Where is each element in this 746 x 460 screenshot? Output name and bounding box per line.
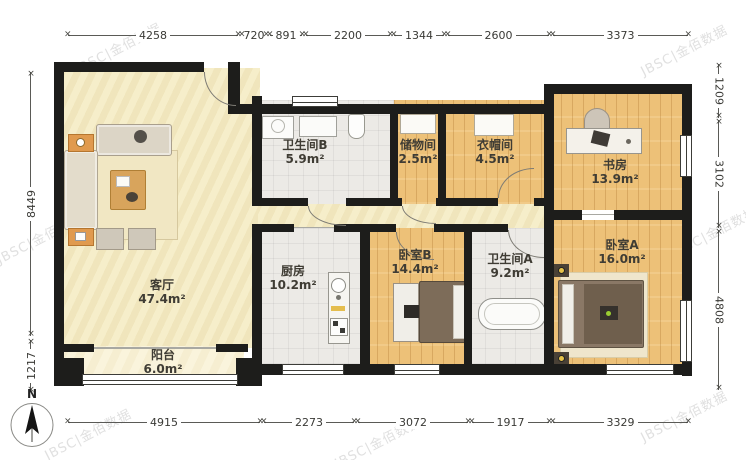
wall — [360, 224, 370, 364]
dim-top-3: 891 — [268, 28, 304, 42]
dim-bottom-3: 3072 — [356, 415, 470, 429]
wall — [436, 198, 498, 206]
wall — [62, 344, 94, 352]
north-label: N — [9, 388, 55, 400]
door-opening — [582, 210, 614, 220]
wall — [438, 364, 608, 375]
side-table — [134, 130, 147, 143]
window — [282, 364, 344, 375]
wall — [252, 224, 262, 364]
dim-bottom-2: 2273 — [262, 415, 356, 429]
label-bedroom-b: 卧室B14.4m² — [367, 248, 463, 276]
dish-rack — [331, 306, 345, 311]
window — [292, 96, 338, 107]
wall — [548, 84, 692, 94]
wall — [262, 224, 294, 232]
pillows — [562, 284, 574, 344]
dim-right-2: 3102 — [712, 120, 726, 228]
sofa — [96, 124, 172, 156]
lamp — [558, 355, 565, 362]
decor — [126, 192, 138, 202]
wall — [54, 358, 84, 386]
wall — [544, 84, 554, 232]
label-balcony: 阳台6.0m² — [115, 348, 211, 376]
wall — [54, 62, 204, 72]
sofa — [64, 150, 98, 230]
wall — [256, 198, 308, 206]
window — [606, 364, 674, 375]
label-bedroom-a: 卧室A16.0m² — [574, 238, 670, 266]
label-living-room: 客厅47.4m² — [114, 278, 210, 306]
tv — [404, 305, 419, 318]
label-study: 书房13.9m² — [567, 158, 663, 186]
faucet — [336, 295, 341, 300]
dim-top-7: 3373 — [551, 28, 690, 42]
wall — [464, 224, 472, 364]
dim-top-5: 1344 — [392, 28, 446, 42]
north-arrow-icon — [9, 400, 55, 448]
label-kitchen: 厨房10.2m² — [245, 264, 341, 292]
wall — [614, 210, 682, 220]
door-threshold — [294, 227, 334, 228]
label-bathroom-a: 卫生间A9.2m² — [462, 252, 558, 280]
dim-top-1: 4258 — [66, 28, 240, 42]
wardrobe — [474, 114, 514, 136]
dim-right-1: 1209 — [712, 64, 726, 118]
label-cloakroom: 衣帽间4.5m² — [447, 138, 543, 166]
wall — [434, 224, 464, 232]
wall — [534, 198, 546, 206]
label-bathroom-b: 卫生间B5.9m² — [257, 138, 353, 166]
ottoman — [128, 228, 156, 250]
lamp — [76, 138, 85, 147]
dim-top-6: 2600 — [446, 28, 551, 42]
tray — [116, 176, 130, 187]
lamp — [558, 267, 565, 274]
wall — [370, 224, 396, 232]
wall — [672, 364, 692, 375]
floor-plan: JBSC|金佰数据 JBSC|金佰数据 JBSC|金佰数据 JBSC|金佰数据 … — [0, 0, 746, 460]
window — [680, 300, 692, 362]
door-threshold — [582, 214, 614, 215]
wall — [554, 210, 582, 220]
wall — [342, 364, 396, 375]
window — [680, 135, 692, 177]
dim-left-1: 8449 — [24, 72, 38, 336]
dim-bottom-4: 1917 — [470, 415, 551, 429]
toilet — [348, 114, 365, 139]
ottoman — [96, 228, 124, 250]
laptop-light — [606, 311, 611, 316]
bathtub-inner — [484, 303, 540, 325]
wall — [216, 344, 248, 352]
mouse — [626, 139, 631, 144]
window — [394, 364, 440, 375]
dim-right-3: 4808 — [712, 230, 726, 390]
wall — [346, 198, 402, 206]
burner — [333, 321, 338, 326]
north-indicator: N — [9, 388, 55, 452]
cabinet — [400, 114, 436, 134]
book — [75, 232, 86, 241]
dim-left-2: 1217 — [24, 340, 38, 392]
cabinet — [299, 116, 337, 137]
dim-top-2: 720 — [240, 28, 268, 42]
dim-bottom-1: 4915 — [66, 415, 262, 429]
wall — [54, 62, 64, 374]
dim-top-4: 2200 — [304, 28, 392, 42]
washer-door — [271, 119, 285, 133]
burner — [340, 328, 345, 333]
dim-bottom-5: 3329 — [551, 415, 690, 429]
wall — [472, 224, 508, 232]
